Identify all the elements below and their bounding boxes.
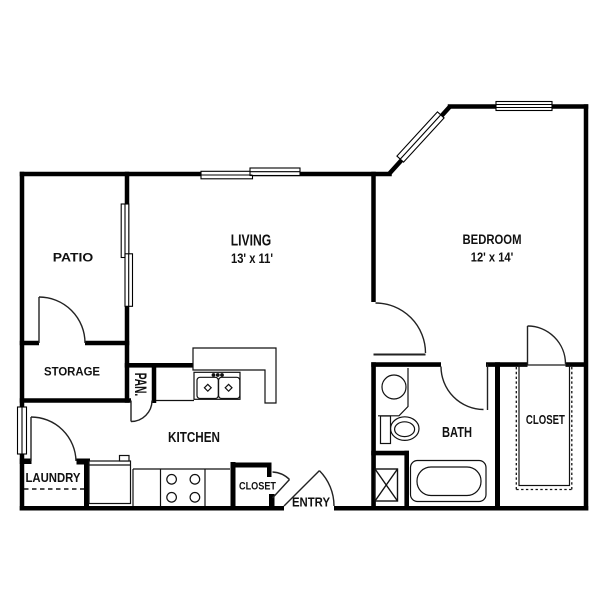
svg-text:LIVING: LIVING xyxy=(231,233,272,250)
svg-text:KITCHEN: KITCHEN xyxy=(168,430,220,446)
svg-text:ENTRY: ENTRY xyxy=(292,495,330,510)
svg-text:CLOSET: CLOSET xyxy=(239,481,276,493)
svg-text:12' x 14': 12' x 14' xyxy=(471,250,514,265)
svg-text:BATH: BATH xyxy=(442,424,472,441)
svg-text:STORAGE: STORAGE xyxy=(44,367,100,379)
svg-text:PATIO: PATIO xyxy=(53,253,94,265)
svg-text:PAN.: PAN. xyxy=(131,373,149,397)
svg-text:LAUNDRY: LAUNDRY xyxy=(26,470,81,485)
svg-text:CLOSET: CLOSET xyxy=(526,413,565,427)
svg-text:BEDROOM: BEDROOM xyxy=(463,232,522,247)
svg-text:13' x 11': 13' x 11' xyxy=(231,250,273,266)
